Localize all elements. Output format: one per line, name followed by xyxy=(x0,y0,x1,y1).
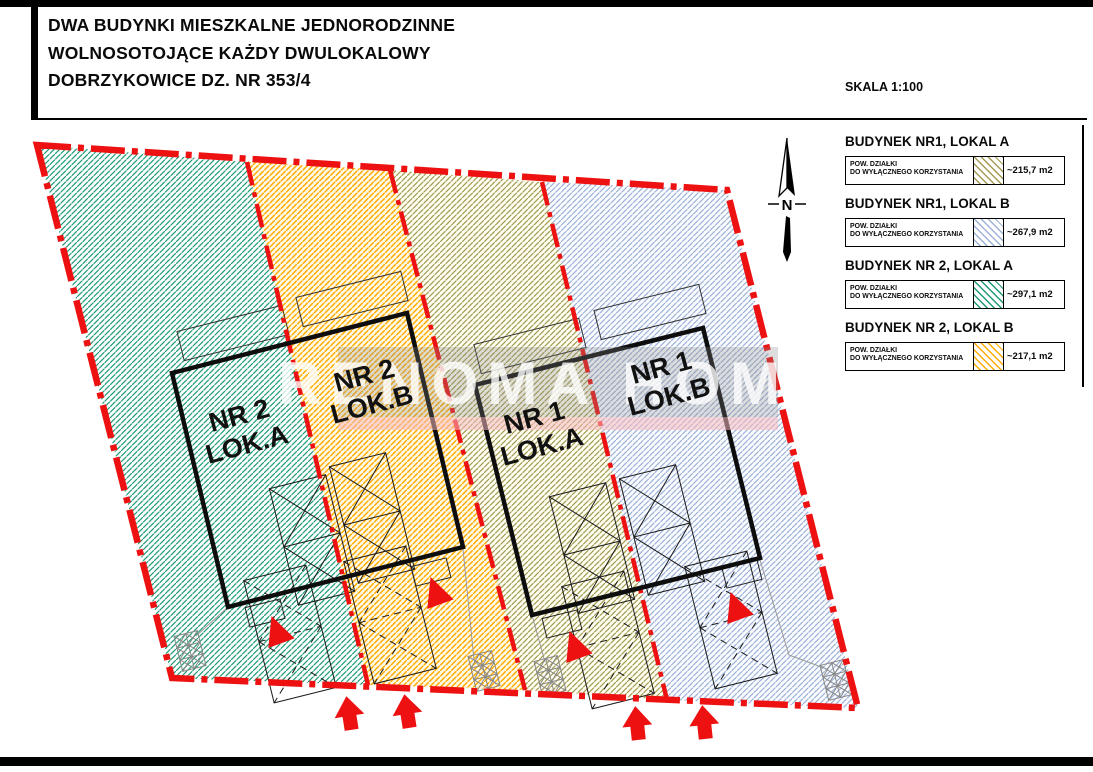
legend-item-box: POW. DZIAŁKI DO WYŁĄCZNEGO KORZYSTANIA ~… xyxy=(845,280,1065,309)
legend-area-value: ~215,7 m2 xyxy=(1004,157,1064,184)
legend-desc-line2: DO WYŁĄCZNEGO KORZYSTANIA xyxy=(850,355,971,363)
legend-item-title: BUDYNEK NR1, LOKAL B xyxy=(845,196,1065,211)
legend-area-value: ~217,1 m2 xyxy=(1004,343,1064,370)
access-arrow-icon xyxy=(620,705,653,742)
site-plan-drawing: RENOMA HOME NR 2 LOK.A NR 2 LOK.B NR 1 L… xyxy=(0,0,1093,772)
legend-desc-line2: DO WYŁĄCZNEGO KORZYSTANIA xyxy=(850,231,971,239)
access-arrow-icon xyxy=(390,692,425,730)
legend-desc-line2: DO WYŁĄCZNEGO KORZYSTANIA xyxy=(850,293,971,301)
legend-item-title: BUDYNEK NR 2, LOKAL B xyxy=(845,320,1065,335)
legend-item-box: POW. DZIAŁKI DO WYŁĄCZNEGO KORZYSTANIA ~… xyxy=(845,218,1065,247)
legend-area-value: ~267,9 m2 xyxy=(1004,219,1064,246)
legend-desc-line1: POW. DZIAŁKI xyxy=(850,161,971,169)
legend-hatch-swatch xyxy=(973,281,1004,308)
legend-area-value: ~297,1 m2 xyxy=(1004,281,1064,308)
legend-desc-line1: POW. DZIAŁKI xyxy=(850,347,971,355)
legend-desc-line2: DO WYŁĄCZNEGO KORZYSTANIA xyxy=(850,169,971,177)
legend: BUDYNEK NR1, LOKAL A POW. DZIAŁKI DO WYŁ… xyxy=(845,134,1065,382)
north-label: N xyxy=(782,197,793,214)
legend-desc-line1: POW. DZIAŁKI xyxy=(850,285,971,293)
legend-item-box: POW. DZIAŁKI DO WYŁĄCZNEGO KORZYSTANIA ~… xyxy=(845,342,1065,371)
legend-hatch-swatch xyxy=(973,157,1004,184)
legend-item-title: BUDYNEK NR 2, LOKAL A xyxy=(845,258,1065,273)
legend-item-box: POW. DZIAŁKI DO WYŁĄCZNEGO KORZYSTANIA ~… xyxy=(845,156,1065,185)
legend-hatch-swatch xyxy=(973,219,1004,246)
north-arrow-icon: N xyxy=(768,138,806,262)
legend-desc-line1: POW. DZIAŁKI xyxy=(850,223,971,231)
access-arrow-icon xyxy=(687,704,720,741)
access-arrow-icon xyxy=(332,694,367,732)
legend-hatch-swatch xyxy=(973,343,1004,370)
legend-item-title: BUDYNEK NR1, LOKAL A xyxy=(845,134,1065,149)
